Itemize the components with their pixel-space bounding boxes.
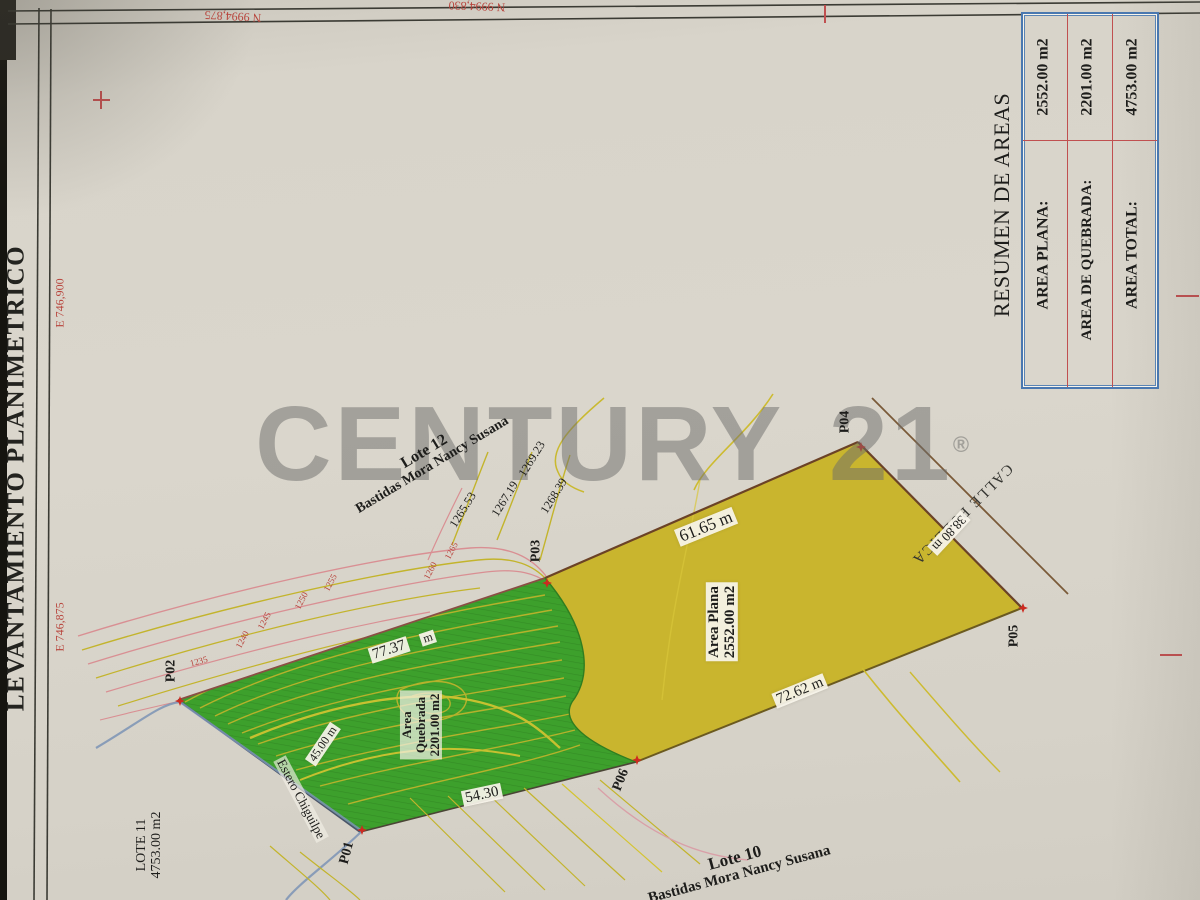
areas-table-label-quebrada: AREA DE QUEBRADA: bbox=[1079, 180, 1095, 341]
lote11-area: 4753.00 m2 bbox=[149, 812, 164, 879]
registered-mark-icon: ® bbox=[953, 432, 969, 457]
area-plana-line1: Area Plana bbox=[706, 586, 722, 659]
areas-table-label-total: AREA TOTAL: bbox=[1123, 201, 1140, 309]
table-divider-h bbox=[1023, 140, 1157, 141]
grid-label-n1: N 9994,875 bbox=[204, 8, 261, 24]
sheet-title: LEVANTAMIENTO PLANIMETRICO bbox=[3, 245, 30, 711]
area-plana-label: Area Plana 2552.00 m2 bbox=[706, 583, 738, 662]
photo-shadow-topleft bbox=[0, 0, 260, 220]
point-label-p05: P05 bbox=[1006, 625, 1021, 648]
point-label-p03: P03 bbox=[528, 540, 543, 563]
areas-table-value-quebrada: 2201.00 m2 bbox=[1078, 38, 1095, 115]
grid-label-e1: E 746,900 bbox=[54, 278, 67, 327]
areas-table-title: RESUMEN DE AREAS bbox=[990, 93, 1014, 317]
table-divider-v2 bbox=[1112, 14, 1113, 387]
table-divider-v1 bbox=[1067, 14, 1068, 387]
area-quebrada-line2: Quebrada bbox=[414, 694, 428, 757]
grid-label-n2: N 9994,830 bbox=[448, 0, 505, 13]
areas-table-value-plana: 2552.00 m2 bbox=[1034, 38, 1051, 115]
grid-label-e2: E 746,875 bbox=[54, 602, 67, 651]
areas-table-label-plana: AREA PLANA: bbox=[1034, 201, 1051, 310]
lote11-name: LOTE 11 bbox=[134, 812, 149, 879]
area-plana-line2: 2552.00 m2 bbox=[722, 586, 738, 659]
area-quebrada-line1: Area bbox=[400, 694, 414, 757]
survey-plan-photo: CENTURY 21® LEVANTAMIENTO PLANIMETRICO E… bbox=[0, 0, 1200, 900]
areas-table-value-total: 4753.00 m2 bbox=[1123, 38, 1140, 115]
lote11-label: LOTE 11 4753.00 m2 bbox=[134, 812, 164, 879]
point-label-p02: P02 bbox=[163, 660, 178, 683]
area-quebrada-line3: 2201.00 m2 bbox=[428, 694, 442, 757]
point-label-p04: P04 bbox=[837, 411, 852, 434]
area-quebrada-label: Area Quebrada 2201.00 m2 bbox=[400, 691, 442, 760]
